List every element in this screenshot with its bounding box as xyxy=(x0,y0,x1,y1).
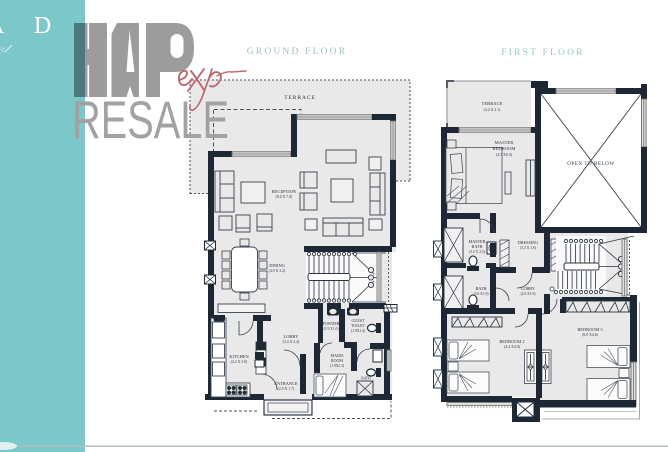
svg-text:ENTRANCE: ENTRANCE xyxy=(274,381,298,386)
svg-text:BATH: BATH xyxy=(361,377,371,381)
svg-text:(1.9 X1.0): (1.9 X1.0) xyxy=(324,327,340,331)
svg-text:(2.6 X1.9): (2.6 X1.9) xyxy=(521,292,537,296)
svg-text:LOBBY: LOBBY xyxy=(521,286,535,291)
svg-text:GROUND FLOOR: GROUND FLOOR xyxy=(247,47,348,57)
svg-text:TOILET: TOILET xyxy=(351,323,365,328)
svg-text:TERRACE: TERRACE xyxy=(284,95,316,101)
svg-text:(4.2 X 2.1): (4.2 X 2.1) xyxy=(484,108,501,112)
svg-text:ROOM: ROOM xyxy=(331,358,343,363)
svg-text:(3.0 X 2.5): (3.0 X 2.5) xyxy=(469,250,486,254)
svg-text:(6.0 X4.6): (6.0 X4.6) xyxy=(582,333,598,337)
svg-text:BEDROOM 2: BEDROOM 2 xyxy=(499,339,524,344)
svg-text:BATH: BATH xyxy=(476,286,487,291)
svg-text:POWDER: POWDER xyxy=(323,321,340,326)
svg-text:(2.0 X 1.7): (2.0 X 1.7) xyxy=(278,387,295,391)
svg-text:(4.9 X 3.2): (4.9 X 3.2) xyxy=(269,269,286,273)
svg-text:DRESSING: DRESSING xyxy=(518,240,538,245)
svg-text:OPEN TO BELOW: OPEN TO BELOW xyxy=(567,162,615,167)
svg-text:r²: r² xyxy=(0,46,4,57)
svg-text:(4.4 X4.0): (4.4 X4.0) xyxy=(504,345,520,349)
svg-text:(9.0 X 7.0): (9.0 X 7.0) xyxy=(276,195,293,199)
svg-text:MASTER: MASTER xyxy=(495,140,515,145)
svg-text:AD: AD xyxy=(0,13,81,39)
svg-text:(3.4 X 2.4): (3.4 X 2.4) xyxy=(283,340,300,344)
svg-text:FIRST FLOOR: FIRST FLOOR xyxy=(501,48,584,58)
svg-text:(3.2 X 1.6): (3.2 X 1.6) xyxy=(520,246,537,250)
svg-text:BEDROOM 3: BEDROOM 3 xyxy=(577,327,603,332)
svg-text:DINING: DINING xyxy=(269,263,285,268)
svg-text:(4.4 X 3.0): (4.4 X 3.0) xyxy=(231,360,248,364)
svg-text:LOBBY: LOBBY xyxy=(284,334,300,339)
svg-text:BATH: BATH xyxy=(472,244,483,249)
svg-text:RECEPTION: RECEPTION xyxy=(272,189,297,194)
svg-text:(1.9X2.3): (1.9X2.3) xyxy=(330,364,345,368)
svg-text:(4.5 X6.0): (4.5 X6.0) xyxy=(496,153,512,157)
svg-text:BEDROOM: BEDROOM xyxy=(493,146,516,151)
svg-text:KITCHEN: KITCHEN xyxy=(229,354,249,359)
svg-text:(1.9X1.4): (1.9X1.4) xyxy=(351,329,366,333)
svg-text:RESALE: RESALE xyxy=(72,91,229,150)
svg-text:TERRACE: TERRACE xyxy=(482,101,503,106)
svg-text:(3.0 X1.9): (3.0 X1.9) xyxy=(474,292,490,296)
